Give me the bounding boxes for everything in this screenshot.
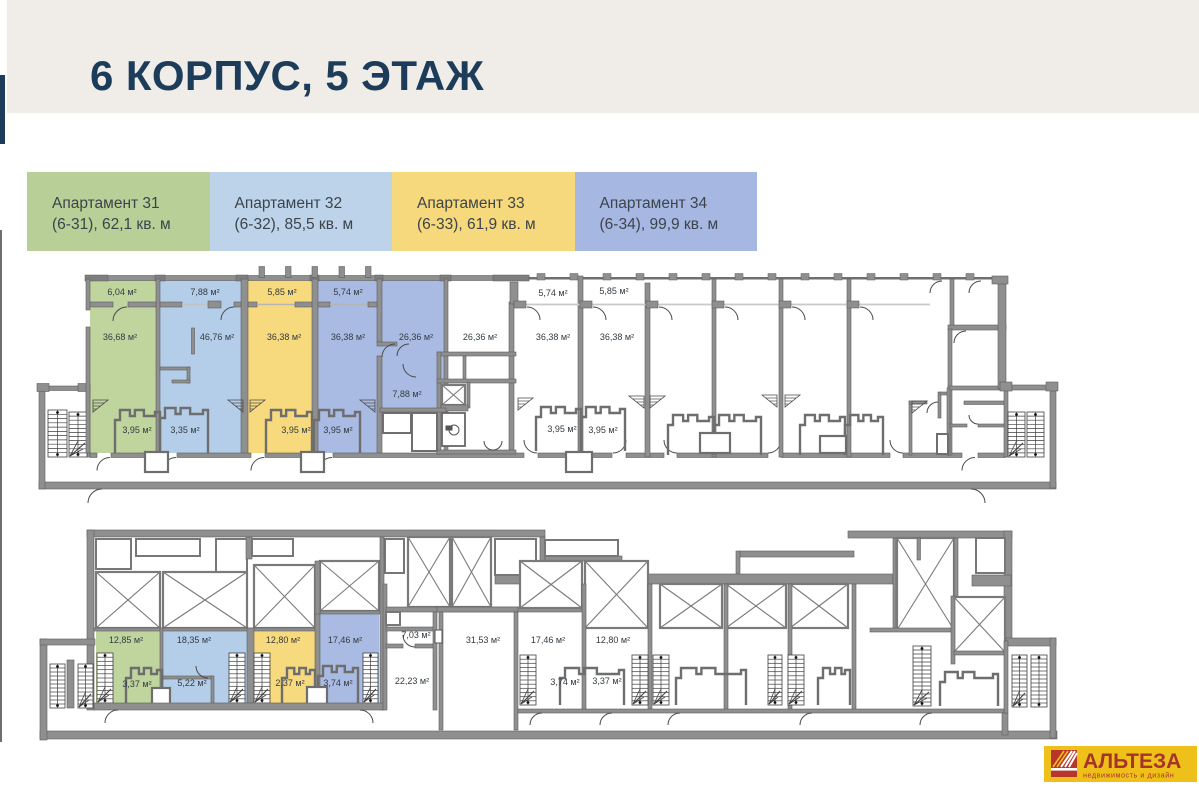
svg-text:36,38 м²: 36,38 м² [267,332,301,342]
svg-text:3,35 м²: 3,35 м² [170,425,199,435]
svg-text:5,22 м²: 5,22 м² [177,678,206,688]
svg-text:3,37 м²: 3,37 м² [122,679,151,689]
svg-text:недвижимость и дизайн: недвижимость и дизайн [1083,771,1174,780]
svg-text:7,88 м²: 7,88 м² [190,287,219,297]
svg-text:12,80 м²: 12,80 м² [266,635,300,645]
svg-text:3,95 м²: 3,95 м² [122,425,151,435]
svg-text:22,23 м²: 22,23 м² [395,676,429,686]
svg-text:3,95 м²: 3,95 м² [323,425,352,435]
svg-text:31,53 м²: 31,53 м² [466,635,500,645]
svg-text:36,38 м²: 36,38 м² [331,332,365,342]
svg-text:7,88 м²: 7,88 м² [392,389,421,399]
svg-text:3,95 м²: 3,95 м² [547,424,576,434]
svg-text:6,04 м²: 6,04 м² [107,287,136,297]
svg-text:26,36 м²: 26,36 м² [463,332,497,342]
svg-text:5,74 м²: 5,74 м² [538,288,567,298]
svg-text:5,85 м²: 5,85 м² [599,286,628,296]
svg-text:36,38 м²: 36,38 м² [600,332,634,342]
svg-text:26,36 м²: 26,36 м² [399,332,433,342]
svg-text:7,03 м²: 7,03 м² [401,630,430,640]
svg-text:3,74 м²: 3,74 м² [323,678,352,688]
svg-text:5,85 м²: 5,85 м² [267,287,296,297]
svg-text:5,74 м²: 5,74 м² [333,287,362,297]
svg-text:3,74 м²: 3,74 м² [550,677,579,687]
svg-text:3,95 м²: 3,95 м² [281,425,310,435]
svg-text:12,80 м²: 12,80 м² [596,635,630,645]
svg-text:3,95 м²: 3,95 м² [588,425,617,435]
svg-text:2,37 м²: 2,37 м² [275,678,304,688]
svg-text:3,37 м²: 3,37 м² [592,676,621,686]
svg-text:18,35 м²: 18,35 м² [177,635,211,645]
svg-text:36,68 м²: 36,68 м² [103,332,137,342]
svg-text:12,85 м²: 12,85 м² [109,635,143,645]
svg-text:17,46 м²: 17,46 м² [328,635,362,645]
svg-text:46,76 м²: 46,76 м² [200,332,234,342]
svg-text:17,46 м²: 17,46 м² [531,635,565,645]
svg-text:36,38 м²: 36,38 м² [536,332,570,342]
